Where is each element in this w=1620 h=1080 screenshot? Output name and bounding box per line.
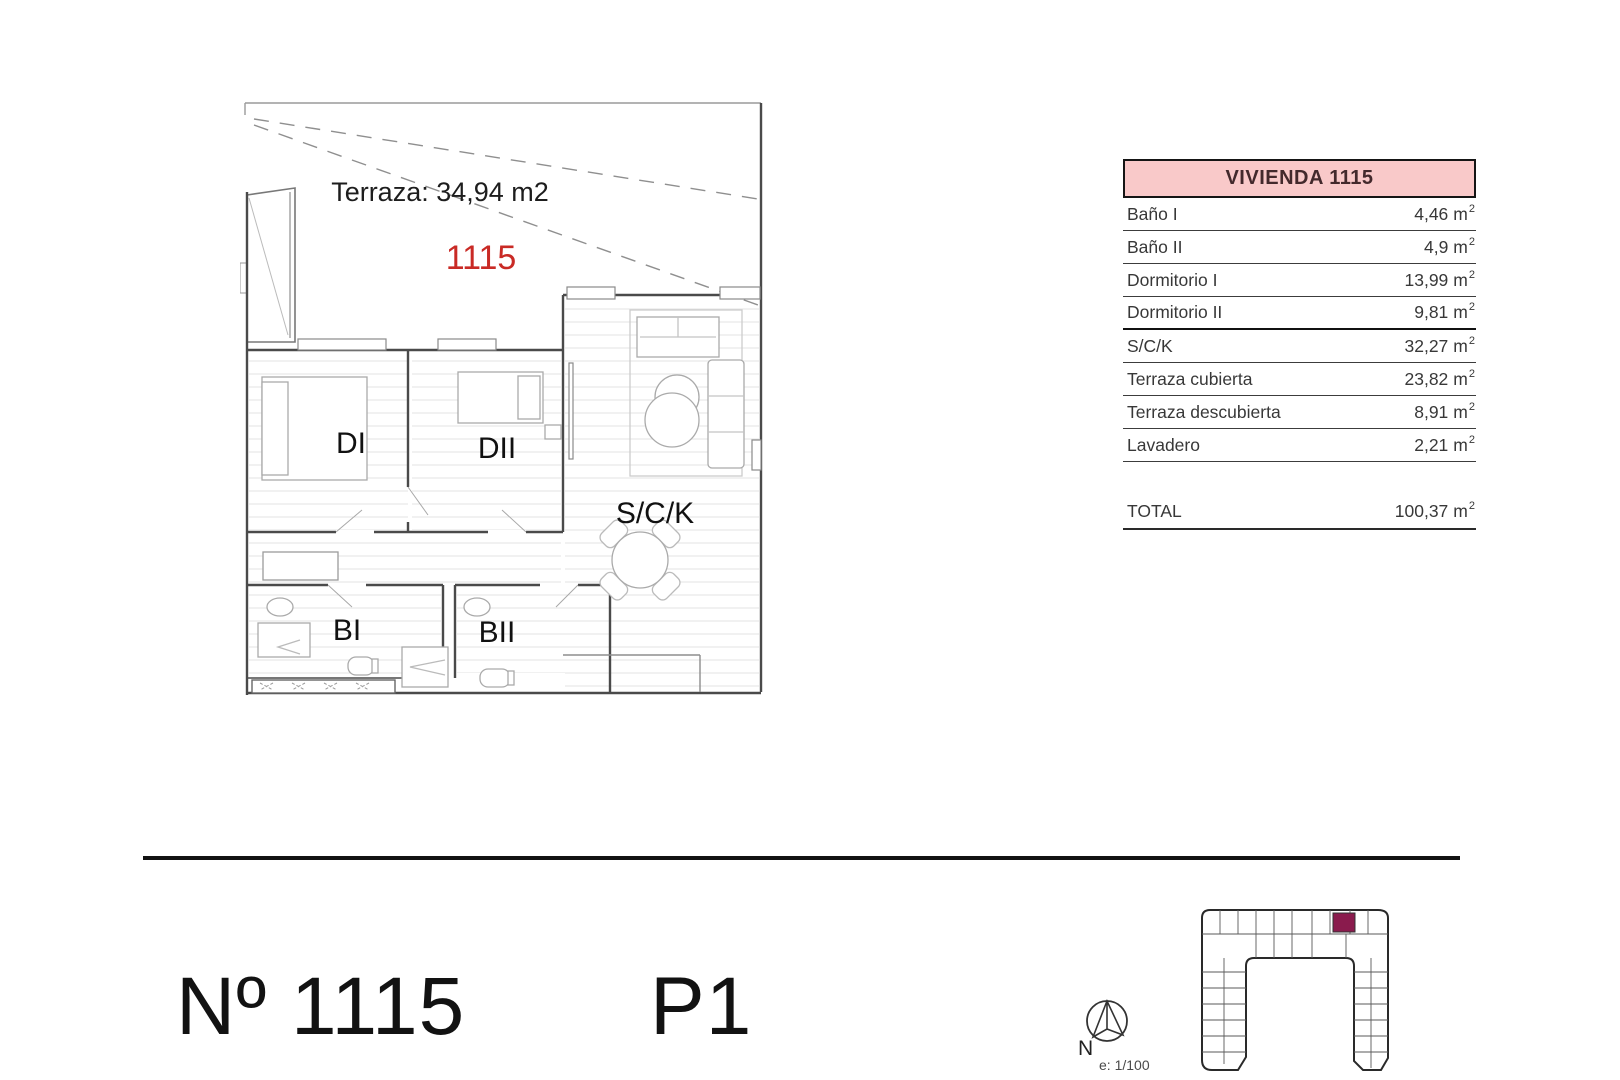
table-row: Baño I 4,46m2 (1123, 198, 1476, 231)
terrace-area-label: Terraza: 34,94 m2 (331, 177, 549, 207)
table-row: S/C/K 32,27m2 (1123, 330, 1476, 363)
row-value: 9,81m2 (1414, 302, 1474, 323)
compass-north-label: N (1078, 1037, 1093, 1060)
total-label: TOTAL (1127, 501, 1182, 522)
room-label-dii: DII (478, 432, 516, 465)
highlighted-unit (1333, 913, 1355, 932)
area-table-title: VIVIENDA 1115 (1123, 159, 1476, 198)
area-table: VIVIENDA 1115 Baño I 4,46m2 Baño II 4,9m… (1123, 159, 1476, 530)
scale-label: e: 1/100 (1099, 1057, 1150, 1073)
table-row: Dormitorio II 9,81m2 (1123, 297, 1476, 330)
table-row: Dormitorio I 13,99m2 (1123, 264, 1476, 297)
row-label: Dormitorio II (1127, 302, 1222, 323)
room-label-di: DI (336, 427, 366, 460)
table-total-row: TOTAL 100,37m2 (1123, 494, 1476, 530)
room-label-bi: BI (333, 614, 361, 647)
row-value: 8,91m2 (1414, 402, 1474, 423)
row-value: 4,46m2 (1414, 204, 1474, 225)
north-arrow-icon (1093, 1001, 1123, 1037)
total-value: 100,37m2 (1395, 501, 1474, 522)
footer-floor-label: P1 (650, 966, 752, 1048)
plan-sheet: Terraza: 34,94 m2 1115 DI DII S/C/K BI B… (0, 0, 1620, 1080)
row-label: Terraza cubierta (1127, 369, 1252, 390)
row-label: Lavadero (1127, 435, 1200, 456)
room-label-sck: S/C/K (616, 497, 694, 530)
row-label: S/C/K (1127, 336, 1173, 357)
table-row: Terraza cubierta 23,82m2 (1123, 363, 1476, 396)
footer-unit-title: Nº 1115 (176, 966, 465, 1048)
row-value: 4,9m2 (1424, 237, 1474, 258)
floor-plan-drawing: Terraza: 34,94 m2 1115 DI DII S/C/K BI B… (240, 95, 765, 700)
footer-divider-line (143, 856, 1460, 860)
table-row: Baño II 4,9m2 (1123, 231, 1476, 264)
roof-dashed-lines (254, 119, 758, 305)
laundry-strip (252, 680, 395, 693)
table-row: Terraza descubierta 8,91m2 (1123, 396, 1476, 429)
row-value: 13,99m2 (1405, 270, 1475, 291)
table-row: Lavadero 2,21m2 (1123, 429, 1476, 462)
row-label: Baño II (1127, 237, 1182, 258)
row-label: Baño I (1127, 204, 1178, 225)
room-label-bii: BII (479, 616, 516, 649)
balcony-closet (240, 188, 295, 342)
unit-number-label: 1115 (446, 239, 517, 277)
row-value: 2,21m2 (1414, 435, 1474, 456)
site-plan (1190, 900, 1400, 1080)
row-label: Terraza descubierta (1127, 402, 1281, 423)
terrace-boundary (245, 103, 761, 115)
compass: N e: 1/100 (1055, 985, 1185, 1075)
row-value: 23,82m2 (1405, 369, 1475, 390)
row-value: 32,27m2 (1405, 336, 1475, 357)
row-label: Dormitorio I (1127, 270, 1217, 291)
